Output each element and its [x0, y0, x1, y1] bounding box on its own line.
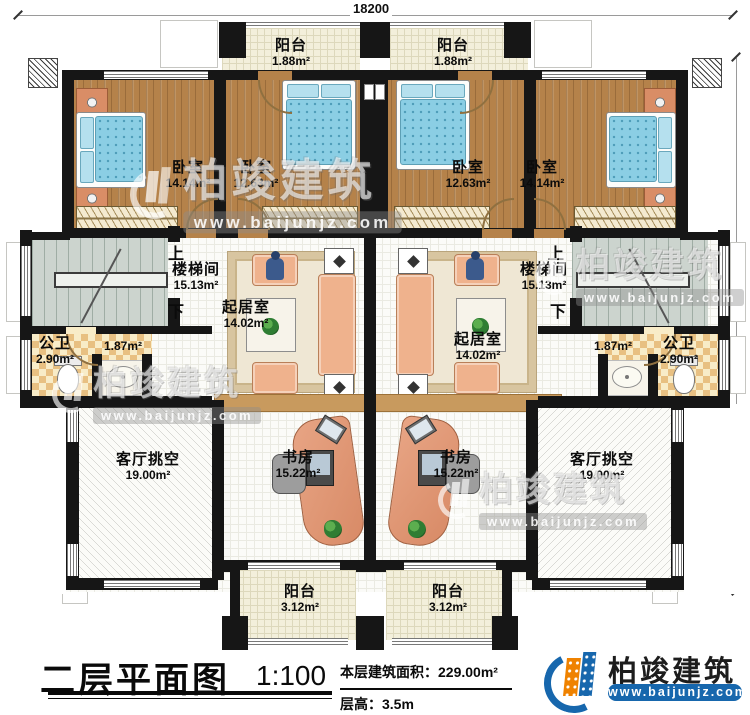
window [542, 71, 646, 79]
floor-area-value: 229.00m² [438, 664, 498, 680]
corner-column [28, 58, 58, 88]
room-area: 3.12m² [252, 601, 348, 614]
window-sill [730, 336, 746, 394]
window [672, 544, 683, 576]
window [719, 246, 729, 316]
toilet-icon [673, 364, 695, 394]
room-label-bedroom-far-right: 卧室 14.14m² [494, 160, 590, 190]
room-name: 客厅挑空 [550, 452, 654, 469]
page-mask [20, 404, 66, 594]
room-label-bath-left: 公卫 2.90m² [24, 336, 86, 366]
brand-website: www.baijunjz.com [608, 684, 742, 701]
room-name: 楼梯间 [498, 262, 590, 279]
room-label-balcony-bottom-left: 阳台 3.12m² [252, 584, 348, 614]
room-name: 阳台 [252, 584, 348, 601]
room-area: 14.02m² [432, 349, 524, 362]
room-label-balcony-bottom-right: 阳台 3.12m² [400, 584, 496, 614]
basin-area-label-right: 1.87m² [586, 340, 640, 353]
floor-height-value: 3.5m [382, 696, 414, 712]
room-label-living-right: 起居室 14.02m² [432, 332, 524, 362]
sofa-icon [396, 274, 434, 376]
room-label-living-left: 起居室 14.02m² [200, 300, 292, 330]
balcony-railing [392, 638, 504, 645]
door-opening [66, 327, 96, 334]
room-name: 起居室 [200, 300, 292, 317]
door-opening [482, 229, 512, 238]
room-label-bedroom-mid-left: 卧室 12.63m² [208, 160, 304, 190]
room-area: 1.88m² [246, 55, 336, 68]
window-sill [160, 20, 218, 68]
room-label-bath-right: 公卫 2.90m² [648, 336, 710, 366]
room-name: 楼梯间 [150, 262, 242, 279]
title-underline [48, 698, 332, 699]
door-opening [258, 71, 292, 80]
column [356, 616, 384, 650]
door-opening [238, 229, 268, 238]
pillow-icon [80, 151, 94, 183]
room-area: 14.14m² [494, 177, 590, 190]
person-icon [266, 258, 284, 280]
room-area: 3.12m² [400, 601, 496, 614]
sliding-door [248, 562, 340, 570]
floor-area-row: 本层建筑面积：229.00m² [340, 662, 498, 682]
window [550, 580, 646, 588]
stair-down-label: 下 [550, 298, 566, 322]
room-area: 14.02m² [200, 317, 292, 330]
person-icon [466, 258, 484, 280]
wall [230, 565, 240, 621]
room-name: 书房 [252, 450, 344, 467]
armchair-icon [454, 362, 500, 394]
room-label-void-left: 客厅挑空 19.00m² [96, 452, 200, 482]
room-area: 15.13m² [498, 279, 590, 292]
room-name: 客厅挑空 [96, 452, 200, 469]
pillow-icon [321, 84, 351, 98]
wall [570, 226, 582, 242]
mattress-icon [286, 99, 352, 165]
room-label-study-left: 书房 15.22m² [252, 450, 344, 480]
plant-icon [324, 520, 342, 538]
plant-icon [408, 520, 426, 538]
mattress-icon [400, 99, 466, 165]
column [504, 22, 531, 58]
brand-logo-icon [543, 648, 601, 706]
column [360, 22, 390, 58]
window [375, 84, 385, 100]
room-area: 2.90m² [24, 353, 86, 366]
titleblock-divider [340, 688, 512, 690]
room-area: 12.63m² [208, 177, 304, 190]
wall [538, 396, 730, 408]
armchair-icon [252, 362, 298, 394]
drawing-scale: 1:100 [256, 660, 326, 692]
floor-plan-canvas: 18200 15840 [0, 0, 750, 715]
sliding-door [404, 562, 496, 570]
top-dimension-label: 18200 [350, 1, 392, 16]
door-opening [458, 71, 492, 80]
floor-height-label: 层高： [340, 696, 382, 712]
room-label-balcony-top-right: 阳台 1.88m² [408, 38, 498, 68]
stair-handrail [576, 272, 690, 288]
wall [20, 232, 70, 240]
room-name: 卧室 [494, 160, 590, 177]
mattress-icon [609, 116, 657, 182]
column [219, 22, 246, 58]
floor-area-label: 本层建筑面积： [340, 664, 438, 680]
room-name: 起居室 [432, 332, 524, 349]
room-label-void-right: 客厅挑空 19.00m² [550, 452, 654, 482]
basin-area-label-left: 1.87m² [96, 340, 150, 353]
toilet-icon [57, 364, 79, 394]
side-table-icon [324, 248, 354, 274]
washbasin-icon [612, 366, 642, 388]
window [364, 84, 374, 100]
room-name: 公卫 [24, 336, 86, 353]
window [672, 410, 683, 442]
room-area: 1.87m² [96, 340, 150, 353]
wall [502, 565, 512, 621]
mattress-icon [95, 116, 143, 182]
window [67, 410, 78, 442]
wall [62, 70, 74, 236]
room-label-stair-left: 楼梯间 15.13m² [150, 262, 242, 292]
room-name: 阳台 [400, 584, 496, 601]
wall [538, 326, 730, 334]
pillow-icon [658, 151, 672, 183]
room-area: 15.22m² [252, 467, 344, 480]
door-opening [644, 327, 674, 334]
sofa-icon [318, 274, 356, 376]
window-sill [534, 20, 592, 68]
room-name: 公卫 [648, 336, 710, 353]
column [492, 616, 518, 650]
room-label-balcony-top-left: 阳台 1.88m² [246, 38, 336, 68]
pillow-icon [401, 84, 433, 98]
window [104, 71, 208, 79]
floor-height-row: 层高：3.5m [340, 694, 414, 714]
room-label-study-right: 书房 15.22m² [410, 450, 502, 480]
wall [212, 400, 224, 580]
washbasin-icon [108, 366, 138, 388]
column [222, 616, 248, 650]
room-name: 阳台 [246, 38, 336, 55]
room-label-stair-right: 楼梯间 15.13m² [498, 262, 590, 292]
window [104, 580, 200, 588]
wall [20, 326, 212, 334]
room-area: 1.87m² [586, 340, 640, 353]
room-void-right [538, 406, 672, 578]
room-name: 书房 [410, 450, 502, 467]
page-mask [684, 404, 750, 594]
door-opening [534, 229, 564, 238]
room-void-left [79, 406, 213, 578]
side-table-icon [398, 248, 428, 274]
wall [598, 354, 608, 398]
wall [526, 400, 538, 580]
wall [142, 354, 152, 398]
wall [676, 70, 688, 236]
balcony-railing [236, 638, 348, 645]
stair-down-label: 下 [168, 298, 184, 322]
window [67, 544, 78, 576]
wall [680, 232, 730, 240]
room-area: 19.00m² [96, 469, 200, 482]
floor-edge-band [214, 394, 562, 412]
room-area: 15.22m² [410, 467, 502, 480]
drawing-title: 二层平面图 [40, 652, 230, 703]
wall [364, 236, 376, 572]
pillow-icon [80, 117, 94, 149]
title-underline [48, 691, 332, 695]
wall [20, 396, 212, 408]
room-area: 19.00m² [550, 469, 654, 482]
room-area: 2.90m² [648, 353, 710, 366]
pillow-icon [658, 117, 672, 149]
room-name: 卧室 [208, 160, 304, 177]
room-area: 15.13m² [150, 279, 242, 292]
window [719, 340, 729, 390]
door-opening [186, 229, 216, 238]
window [21, 246, 31, 316]
window-sill [730, 242, 746, 322]
corner-column [692, 58, 722, 88]
room-area: 1.88m² [408, 55, 498, 68]
room-name: 阳台 [408, 38, 498, 55]
